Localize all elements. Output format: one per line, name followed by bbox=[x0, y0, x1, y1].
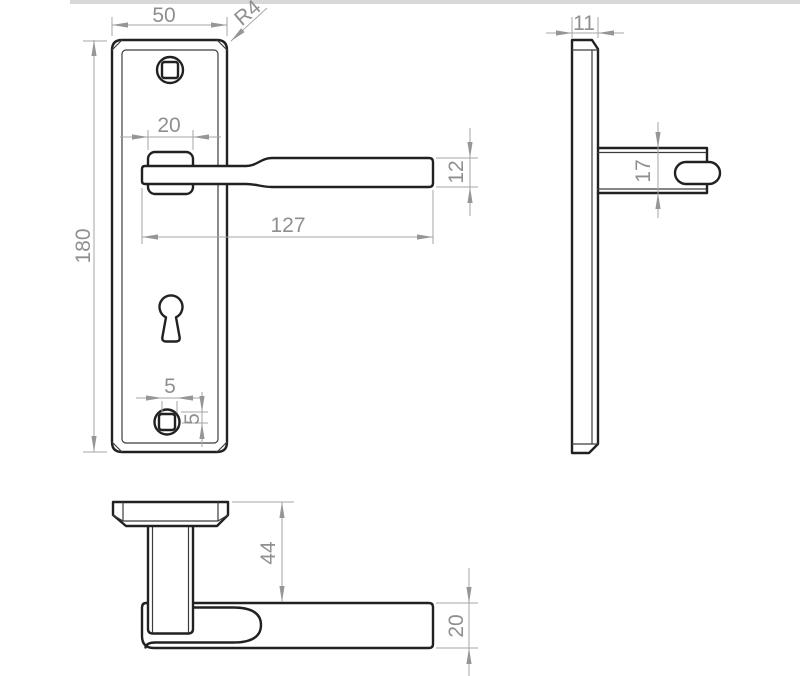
dim-plate-thickness: 11 bbox=[546, 12, 624, 38]
dim-lever-height-label: 12 bbox=[445, 160, 468, 183]
dim-boss-width-label: 20 bbox=[157, 114, 180, 137]
side-view bbox=[572, 40, 720, 453]
dim-lever-depth: 20 bbox=[436, 568, 478, 676]
arrow-down-icon bbox=[91, 436, 96, 452]
arrow-up-icon bbox=[655, 193, 660, 209]
side-dimensions: 11 17 bbox=[546, 12, 661, 218]
arrow-down-icon bbox=[655, 132, 660, 148]
dim-plate-width-label: 50 bbox=[152, 4, 175, 27]
arrow-right-icon bbox=[417, 234, 433, 239]
dim-corner-radius-label: R4 bbox=[230, 0, 266, 30]
dim-handle-projection-label: 44 bbox=[257, 541, 280, 565]
dim-plate-height: 180 bbox=[72, 40, 107, 452]
dim-screw-hole-width-label: 5 bbox=[164, 375, 176, 398]
dim-handle-projection: 44 bbox=[232, 502, 294, 602]
front-view bbox=[112, 40, 433, 452]
dim-lever-thickness: 17 bbox=[632, 122, 661, 218]
dim-plate-width: 50 bbox=[112, 4, 227, 36]
bottom-backplate-outline bbox=[113, 502, 228, 526]
dim-lever-depth-label: 20 bbox=[445, 614, 468, 637]
bottom-dimensions: 44 20 bbox=[232, 502, 478, 676]
arrow-right-icon bbox=[211, 22, 227, 27]
screw-hole-square bbox=[159, 414, 175, 430]
arrow-left-icon bbox=[112, 22, 128, 27]
dim-lever-height: 12 bbox=[436, 128, 478, 216]
dim-plate-height-label: 180 bbox=[72, 228, 95, 263]
arrow-down-icon bbox=[279, 586, 284, 602]
arrow-leader-icon bbox=[231, 28, 245, 41]
dim-lever-length-label: 127 bbox=[270, 214, 305, 237]
dim-lever-thickness-label: 17 bbox=[632, 159, 655, 182]
arrow-down-icon bbox=[467, 142, 472, 158]
arrow-up-icon bbox=[279, 502, 284, 518]
spindle-hole-square bbox=[162, 62, 178, 78]
drawing-canvas: 50 R4 180 20 bbox=[0, 0, 800, 676]
arrow-up-icon bbox=[466, 648, 471, 664]
dim-plate-thickness-label: 11 bbox=[573, 12, 595, 35]
arrow-up-icon bbox=[91, 40, 96, 56]
technical-drawing: 50 R4 180 20 bbox=[0, 0, 800, 676]
side-backplate-outline bbox=[572, 40, 598, 453]
arrow-left-icon bbox=[598, 30, 614, 35]
side-lever-end-capsule bbox=[675, 162, 720, 184]
bottom-neck-outline bbox=[148, 526, 193, 634]
dim-screw-hole-offset-label: 5 bbox=[181, 413, 204, 425]
arrow-down-icon bbox=[466, 587, 471, 603]
dim-corner-radius: R4 bbox=[230, 0, 267, 41]
arrow-right-icon bbox=[556, 30, 572, 35]
arrow-up-icon bbox=[467, 187, 472, 203]
bottom-view bbox=[113, 502, 433, 648]
